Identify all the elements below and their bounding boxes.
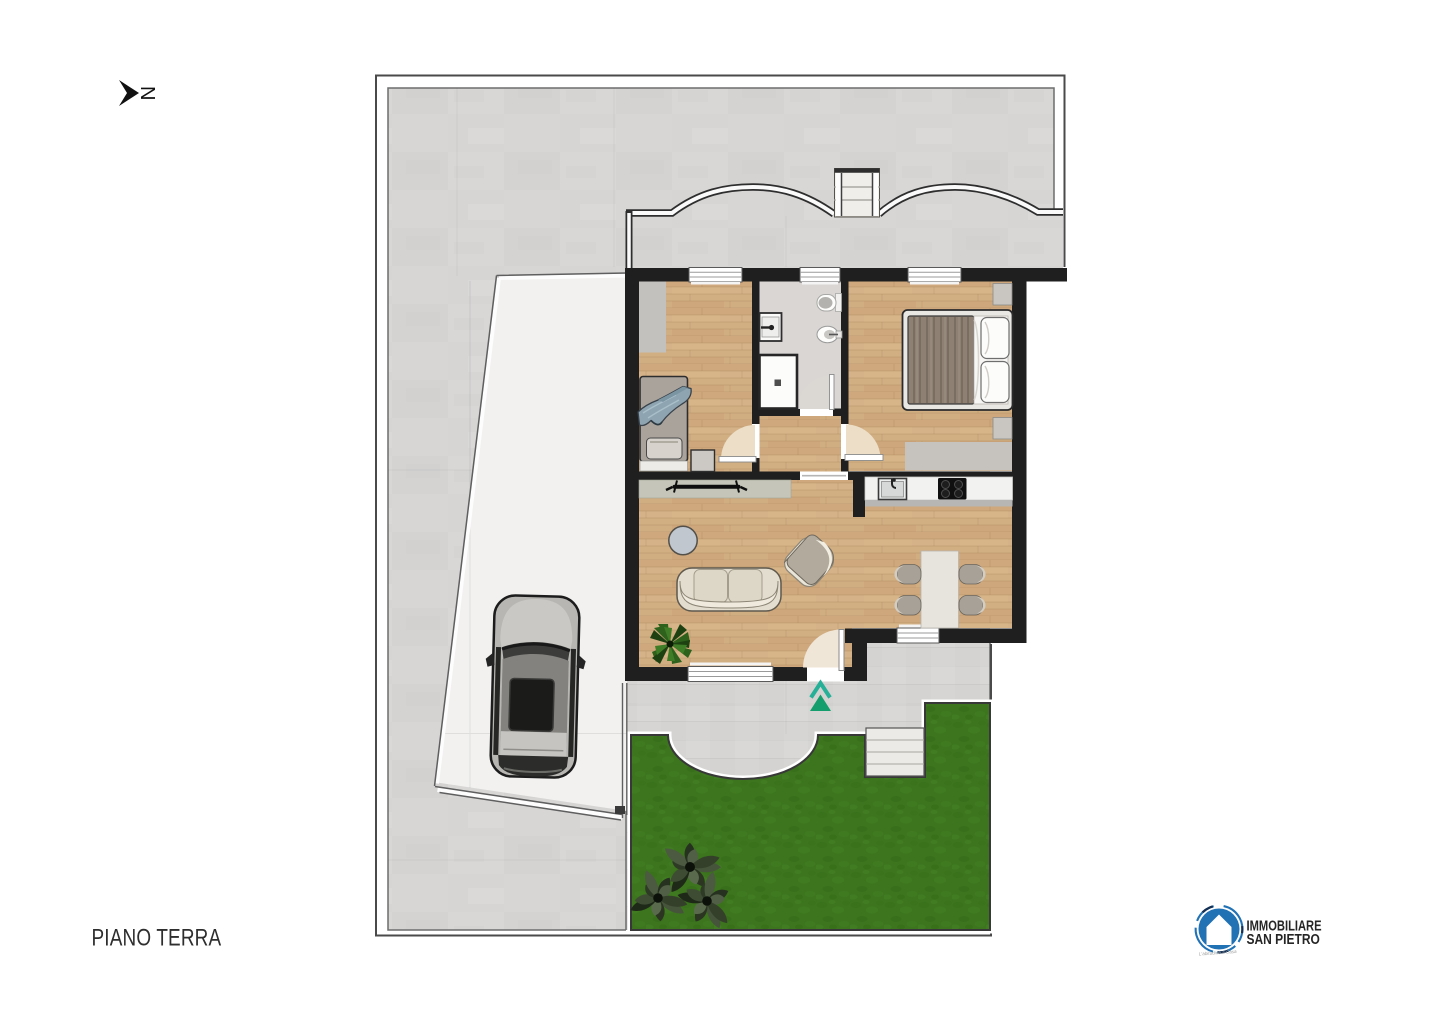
svg-text:SAN PIETRO: SAN PIETRO: [1247, 931, 1320, 948]
svg-text:N: N: [136, 86, 158, 100]
svg-text:PIANO TERRA: PIANO TERRA: [92, 923, 222, 951]
